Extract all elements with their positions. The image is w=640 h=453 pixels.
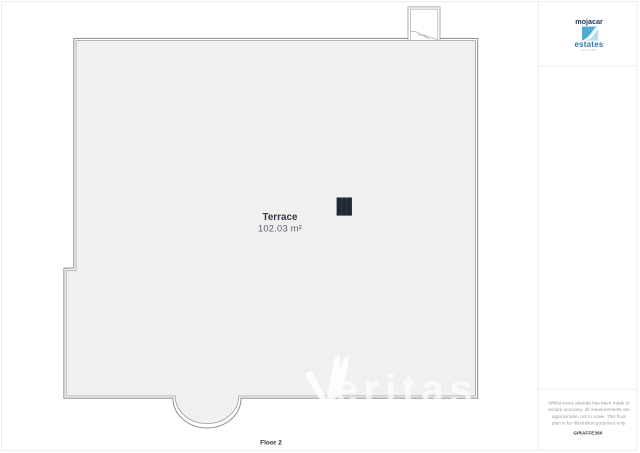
svg-text:102.03 m²: 102.03 m² — [258, 223, 302, 234]
svg-text:plan is for illustration purpo: plan is for illustration purposes only. — [552, 421, 626, 426]
svg-text:since 1987: since 1987 — [581, 48, 597, 52]
svg-text:eritas: eritas — [335, 366, 478, 412]
svg-text:mojacar: mojacar — [575, 17, 603, 26]
svg-text:approximate, not to scale. Thi: approximate, not to scale. This floor — [552, 414, 627, 419]
svg-text:ensure accuracy, all measureme: ensure accuracy, all measurements are — [548, 407, 630, 412]
svg-text:Floor 2: Floor 2 — [260, 440, 282, 447]
svg-text:GIRAFFE360: GIRAFFE360 — [573, 431, 603, 436]
svg-text:Whilst every attempt has been: Whilst every attempt has been made to — [548, 401, 630, 406]
svg-text:Terrace: Terrace — [263, 212, 298, 223]
